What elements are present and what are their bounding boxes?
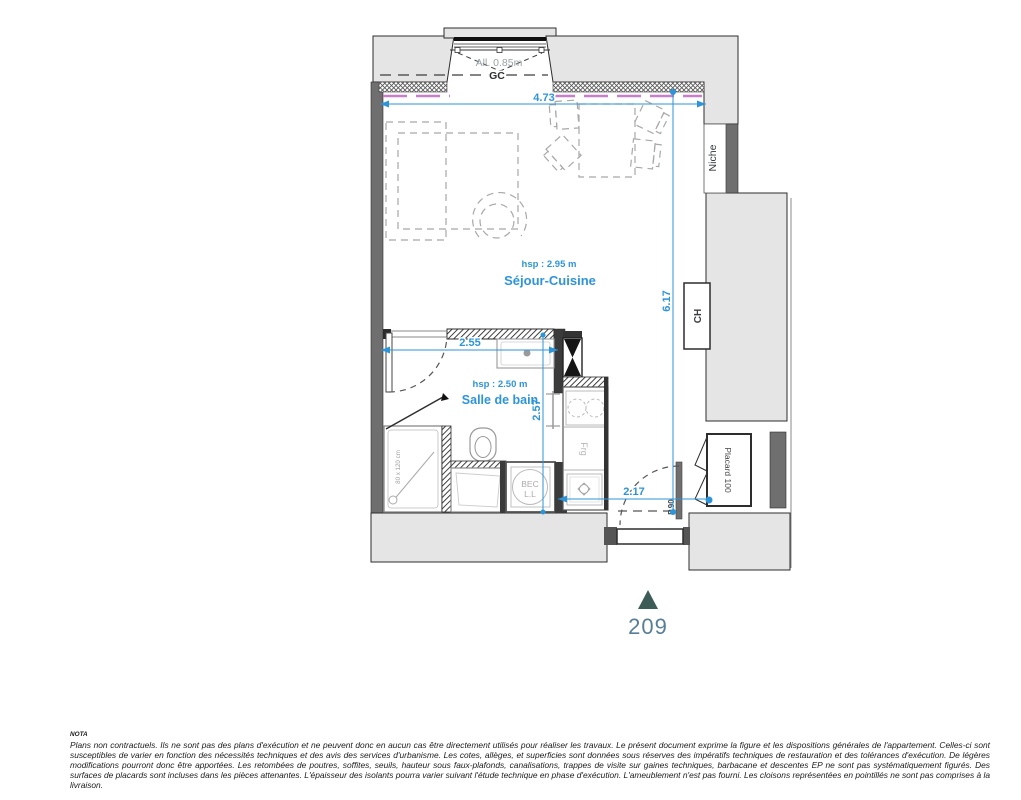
door-jamb-left (604, 527, 617, 545)
kitchen-top-wall (563, 377, 608, 387)
dining-chair (631, 139, 662, 170)
sejour-hsp-label: hsp : 2.95 m (522, 259, 577, 270)
dining-chair (634, 101, 671, 137)
entrance-door: P.90 (604, 462, 690, 545)
entrance-door-open-leaf (676, 462, 682, 519)
fridge-label: Frg (579, 442, 589, 456)
wall-bottom-left (371, 513, 607, 562)
wall-above-window (444, 28, 556, 38)
window-mullion (455, 48, 460, 53)
wall-bottom-right (689, 513, 790, 570)
washbasin-drain (524, 350, 531, 357)
bain-name-label: Salle de bain (462, 393, 538, 407)
dim-entry-label: 2.17 (623, 486, 644, 498)
bathroom-door-leaf (386, 333, 392, 392)
dim-bath-width-label: 2.55 (459, 337, 480, 349)
bed-frame (386, 122, 446, 240)
unit-marker: 209 (628, 590, 668, 639)
door-jamb-right (683, 527, 690, 545)
closet-label: Placard 100 (723, 447, 733, 493)
kitchen-right-wall (604, 377, 608, 510)
nota-title: NOTA (70, 731, 990, 738)
wall-left (371, 82, 383, 513)
shower-door (386, 397, 443, 429)
dim-height-label: 6.17 (661, 290, 673, 311)
dining-chair (542, 134, 582, 174)
unit-number: 209 (628, 614, 668, 639)
niche-back-wall (726, 124, 738, 193)
furniture (386, 100, 670, 240)
wall-top-right (546, 36, 738, 124)
bed-mattress (398, 133, 518, 229)
shower-drain (389, 496, 397, 504)
window-frame (454, 37, 546, 41)
insulation-right (553, 82, 704, 92)
window-allege-label: All. 0.85m (476, 57, 523, 69)
dining-table (579, 104, 635, 177)
entrance-door-leaf (617, 529, 683, 544)
dim-width-label: 4.73 (533, 92, 554, 104)
north-triangle-icon (638, 590, 658, 609)
shower-partition (442, 426, 451, 512)
toilet (470, 428, 496, 461)
water-heater-label: CH (693, 309, 704, 323)
vanity-wall-cap (451, 461, 506, 468)
shower-door-pivot (441, 393, 449, 401)
floor-plan-page: All. 0.85m GC Niche CH Placard 100 (0, 0, 1021, 800)
washing-machine-label1: BEC (521, 479, 538, 489)
bain-hsp-label: hsp : 2.50 m (473, 379, 528, 390)
duct-cap (563, 331, 582, 338)
kitchen-column: Frg (563, 331, 608, 510)
bathroom-door-swing (389, 334, 447, 392)
closet-folding-door (695, 473, 707, 505)
washing-machine-label2: L.L (524, 489, 536, 499)
guardrail-label: GC (489, 70, 505, 82)
nota-body: Plans non contractuels. Ils ne sont pas … (70, 740, 990, 790)
wall-duct-block (706, 193, 787, 421)
armchair-seat (480, 204, 514, 238)
wall-right-of-placard (770, 432, 786, 508)
niche-label: Niche (707, 144, 719, 171)
window-mullion (497, 48, 502, 53)
closet-folding-door (695, 437, 707, 471)
floor-plan-drawing: All. 0.85m GC Niche CH Placard 100 (0, 0, 1021, 800)
sejour-name-label: Séjour-Cuisine (504, 273, 596, 288)
window-mullion (539, 48, 544, 53)
shower-size-label: 80 x 120 cm (395, 450, 402, 484)
nota-block: NOTA Plans non contractuels. Ils ne sont… (70, 731, 990, 790)
insulation-left (379, 82, 447, 92)
